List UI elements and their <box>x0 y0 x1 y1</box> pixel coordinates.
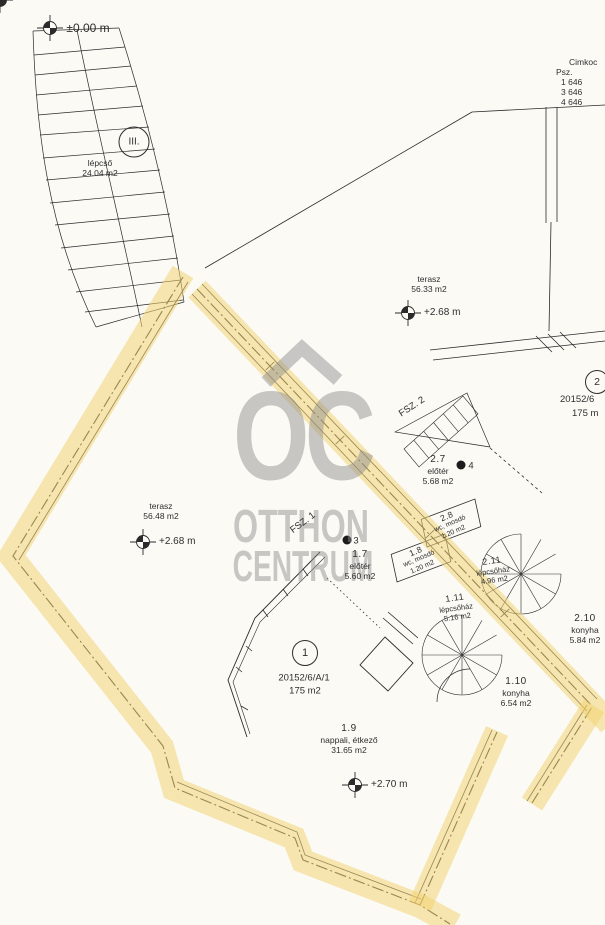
corner-note: Cimkoc Psz. 1 646 3 646 4 646 <box>556 57 597 107</box>
room-name: konyha <box>570 625 601 635</box>
room-label-terrace-lower: terasz 56.48 m2 <box>143 501 178 521</box>
survey-dot-4 <box>457 461 466 470</box>
room-id: 1.10 <box>501 676 532 688</box>
room-id: 1.9 <box>320 723 377 735</box>
room-label-stairwell: lépcső 24.04 m2 <box>82 158 117 178</box>
corner-note-row: 1 646 <box>556 77 597 87</box>
room-area: 31.65 m2 <box>320 745 377 755</box>
room-area: 5.60 m2 <box>345 571 376 581</box>
room-label-2-11: 2.11 lépcsőház 4.96 m2 <box>474 553 511 586</box>
room-label-1-7: 1.7 előtér 5.60 m2 <box>345 549 376 581</box>
unit2-area: 175 m <box>572 408 598 419</box>
survey-dot-3-label: 3 <box>353 535 358 546</box>
room-label-terrace-upper: terasz 56.33 m2 <box>411 274 446 294</box>
room-area: 24.04 m2 <box>82 168 117 178</box>
room-label-1-10: 1.10 konyha 6.54 m2 <box>501 676 532 708</box>
floor-plan-canvas: OC OTTHON CENTRUM ±0.00 m Cimkoc Psz. 1 … <box>0 0 605 925</box>
room-label-1-11: 1.11 lépcsőház 5.16 m2 <box>437 590 474 623</box>
room-area: 56.33 m2 <box>411 284 446 294</box>
room-name: nappali, étkező <box>320 735 377 745</box>
room-area: 5.68 m2 <box>423 476 454 486</box>
benchmark-symbol-top <box>37 15 63 41</box>
room-label-2-10: 2.10 konyha 5.84 m2 <box>570 613 601 645</box>
room-id: 2.10 <box>570 613 601 625</box>
upper-terrace-boundaries <box>205 105 605 360</box>
spiral-stair-lower <box>422 615 502 695</box>
level-label-living: +2.70 m <box>371 779 407 791</box>
room-label-1-9: 1.9 nappali, étkező 31.65 m2 <box>320 723 377 755</box>
room-name: terasz <box>143 501 178 511</box>
room-name: terasz <box>411 274 446 284</box>
room-id: 2.7 <box>423 454 454 466</box>
benchmark-symbol-terrace-lower <box>130 529 156 555</box>
corner-note-row: 3 646 <box>556 87 597 97</box>
benchmark-symbol-living <box>342 772 368 798</box>
unit2-lot-number: 20152/6 <box>560 394 594 405</box>
level-label-terrace-lower: +2.68 m <box>159 536 195 548</box>
room-name: előtér <box>345 561 376 571</box>
survey-dot-4-label: 4 <box>468 460 473 471</box>
room-name: konyha <box>501 688 532 698</box>
level-label-terrace-upper: +2.68 m <box>424 307 460 319</box>
stairwell-badge: III. <box>119 127 150 158</box>
room-name: előtér <box>423 466 454 476</box>
unit2-badge: 2 <box>585 370 605 394</box>
unit1-lot-number: 20152/6/A/1 <box>278 672 329 683</box>
room-area: 56.48 m2 <box>143 511 178 521</box>
watermark-monogram: OC <box>233 364 371 509</box>
corner-note-row: 4 646 <box>556 97 597 107</box>
room-label-2-7: 2.7 előtér 5.68 m2 <box>423 454 454 486</box>
room-area: 5.84 m2 <box>570 635 601 645</box>
unit1-area: 175 m2 <box>289 685 321 696</box>
unit1-badge: 1 <box>292 640 318 666</box>
room-id: 1.7 <box>345 549 376 561</box>
corner-note-title: Cimkoc <box>556 57 597 67</box>
corner-note-subtitle: Psz. <box>556 67 597 77</box>
room-area: 6.54 m2 <box>501 698 532 708</box>
benchmark-top-label: ±0.00 m <box>66 21 109 35</box>
room-name: lépcső <box>82 158 117 168</box>
benchmark-symbol-terrace-upper <box>395 300 421 326</box>
